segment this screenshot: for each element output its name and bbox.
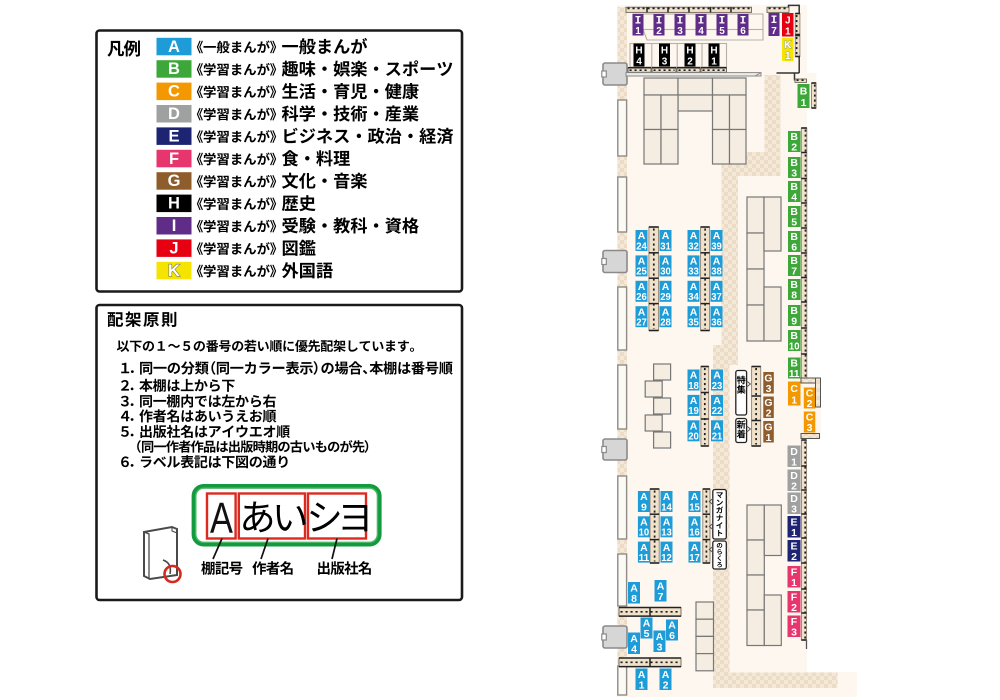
svg-text:G: G: [168, 172, 181, 190]
svg-text:28: 28: [660, 317, 671, 329]
svg-text:K: K: [784, 40, 792, 51]
svg-text:5: 5: [791, 216, 797, 228]
svg-text:K: K: [168, 262, 180, 280]
svg-text:6: 6: [740, 26, 746, 37]
svg-text:1: 1: [639, 679, 645, 691]
svg-text:4: 4: [631, 643, 637, 655]
svg-text:27: 27: [636, 317, 647, 329]
svg-text:C: C: [168, 83, 180, 101]
svg-text:H: H: [661, 46, 668, 57]
svg-text:6: 6: [791, 241, 797, 253]
svg-text:D: D: [168, 105, 180, 123]
svg-text:38: 38: [711, 266, 722, 278]
svg-text:6: 6: [669, 630, 675, 642]
svg-text:2: 2: [663, 679, 669, 691]
svg-text:39: 39: [711, 240, 722, 252]
svg-text:22: 22: [712, 405, 723, 417]
svg-text:3: 3: [791, 503, 797, 515]
svg-text:1: 1: [766, 432, 772, 444]
svg-text:7: 7: [771, 26, 777, 37]
svg-text:14: 14: [661, 501, 672, 513]
svg-text:1: 1: [791, 456, 797, 468]
svg-text:A: A: [210, 494, 233, 543]
svg-text:30: 30: [660, 266, 671, 278]
svg-text:29: 29: [660, 291, 671, 303]
svg-text:35: 35: [688, 317, 699, 329]
svg-text:2: 2: [687, 57, 693, 68]
svg-text:3: 3: [791, 626, 797, 638]
svg-text:2: 2: [791, 141, 797, 153]
svg-text:33: 33: [688, 266, 699, 278]
svg-text:2: 2: [656, 26, 662, 37]
svg-text:1: 1: [711, 57, 717, 68]
svg-text:2: 2: [791, 480, 797, 492]
svg-text:7: 7: [791, 265, 797, 277]
svg-text:34: 34: [688, 291, 699, 303]
svg-text:1: 1: [791, 395, 797, 407]
svg-text:10: 10: [789, 340, 800, 352]
svg-text:7: 7: [658, 591, 664, 603]
svg-text:5: 5: [644, 628, 650, 640]
svg-text:31: 31: [660, 240, 671, 252]
svg-text:16: 16: [689, 527, 700, 539]
svg-text:3: 3: [807, 422, 813, 434]
svg-text:21: 21: [712, 431, 723, 443]
svg-text:4: 4: [636, 57, 642, 68]
svg-text:1: 1: [791, 527, 797, 539]
svg-text:H: H: [710, 46, 717, 57]
svg-text:25: 25: [636, 266, 647, 278]
svg-text:36: 36: [711, 317, 722, 329]
svg-text:C: C: [790, 383, 798, 395]
svg-text:13: 13: [661, 527, 672, 539]
svg-text:4: 4: [698, 26, 704, 37]
svg-text:B: B: [168, 60, 180, 78]
svg-text:32: 32: [688, 240, 699, 252]
svg-text:2: 2: [791, 602, 797, 614]
svg-text:2: 2: [766, 407, 772, 419]
svg-text:I: I: [172, 217, 177, 235]
svg-text:8: 8: [631, 593, 637, 605]
svg-text:17: 17: [689, 552, 700, 564]
svg-text:F: F: [169, 150, 179, 168]
svg-text:J: J: [169, 239, 178, 257]
svg-text:H: H: [686, 46, 693, 57]
svg-text:24: 24: [636, 240, 647, 252]
svg-text:1: 1: [791, 577, 797, 589]
svg-text:J: J: [785, 15, 791, 26]
svg-text:3: 3: [677, 26, 683, 37]
svg-text:2: 2: [807, 398, 813, 410]
svg-text:3: 3: [662, 57, 668, 68]
svg-text:9: 9: [791, 315, 797, 327]
svg-text:9: 9: [641, 501, 647, 513]
svg-text:1: 1: [785, 27, 791, 38]
svg-text:18: 18: [688, 380, 699, 392]
svg-text:3: 3: [791, 167, 797, 179]
svg-text:12: 12: [661, 552, 672, 564]
svg-text:23: 23: [712, 380, 723, 392]
svg-text:2: 2: [791, 551, 797, 563]
svg-text:8: 8: [791, 289, 797, 301]
svg-text:1: 1: [635, 26, 641, 37]
svg-text:26: 26: [636, 291, 647, 303]
svg-text:H: H: [168, 195, 180, 213]
svg-text:A: A: [168, 38, 180, 56]
svg-text:1: 1: [785, 51, 791, 62]
svg-text:5: 5: [719, 26, 725, 37]
svg-text:H: H: [635, 46, 642, 57]
svg-text:15: 15: [689, 501, 700, 513]
svg-text:19: 19: [688, 405, 699, 417]
svg-text:3: 3: [657, 641, 663, 653]
svg-text:11: 11: [639, 552, 650, 564]
svg-text:20: 20: [688, 431, 699, 443]
svg-text:37: 37: [711, 291, 722, 303]
svg-text:10: 10: [639, 527, 650, 539]
svg-text:E: E: [168, 127, 179, 145]
svg-text:B: B: [800, 86, 808, 98]
svg-text:1: 1: [801, 97, 807, 109]
svg-text:11: 11: [789, 368, 800, 380]
svg-text:3: 3: [766, 383, 772, 395]
svg-text:4: 4: [791, 191, 797, 203]
